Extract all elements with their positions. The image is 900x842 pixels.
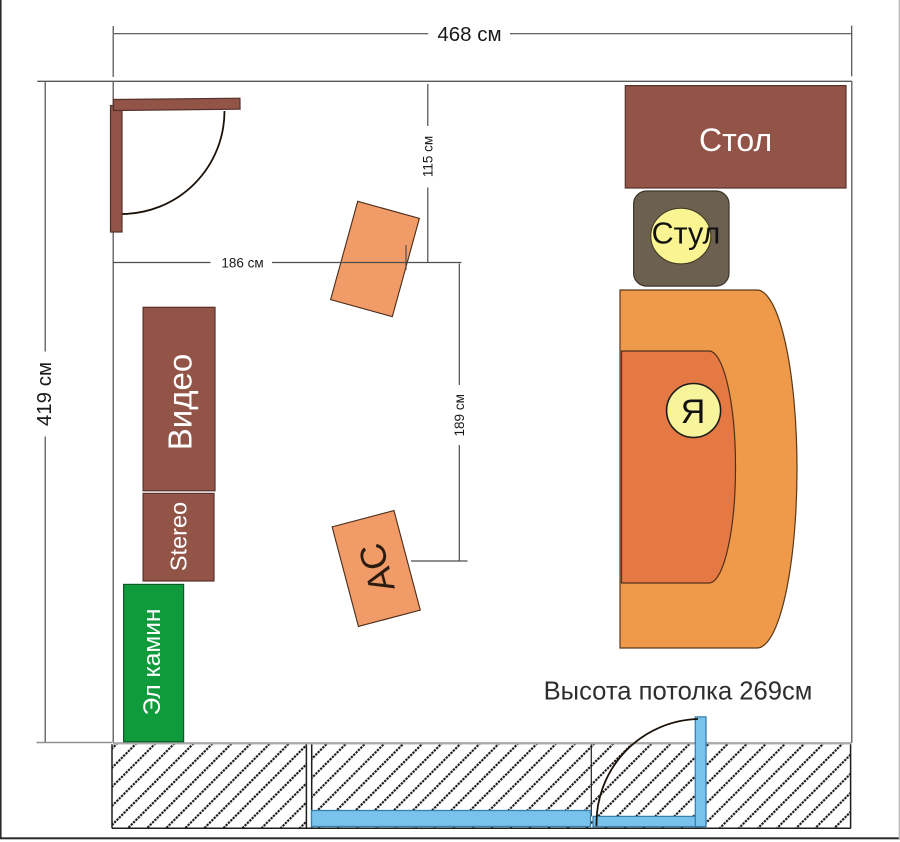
svg-text:Стул: Стул (652, 217, 721, 251)
svg-text:Высота потолка 269см: Высота потолка 269см (544, 678, 813, 706)
svg-text:115 см: 115 см (420, 136, 435, 177)
svg-text:Эл камин: Эл камин (139, 609, 166, 716)
svg-text:186 см: 186 см (221, 256, 263, 271)
svg-text:Стол: Стол (699, 122, 772, 158)
svg-text:189 см: 189 см (452, 394, 467, 436)
svg-text:468 см: 468 см (437, 23, 501, 46)
svg-text:Stereo: Stereo (166, 502, 192, 571)
svg-text:419 см: 419 см (33, 362, 56, 426)
svg-text:Я: Я (681, 393, 706, 431)
svg-text:Видео: Видео (162, 354, 199, 450)
